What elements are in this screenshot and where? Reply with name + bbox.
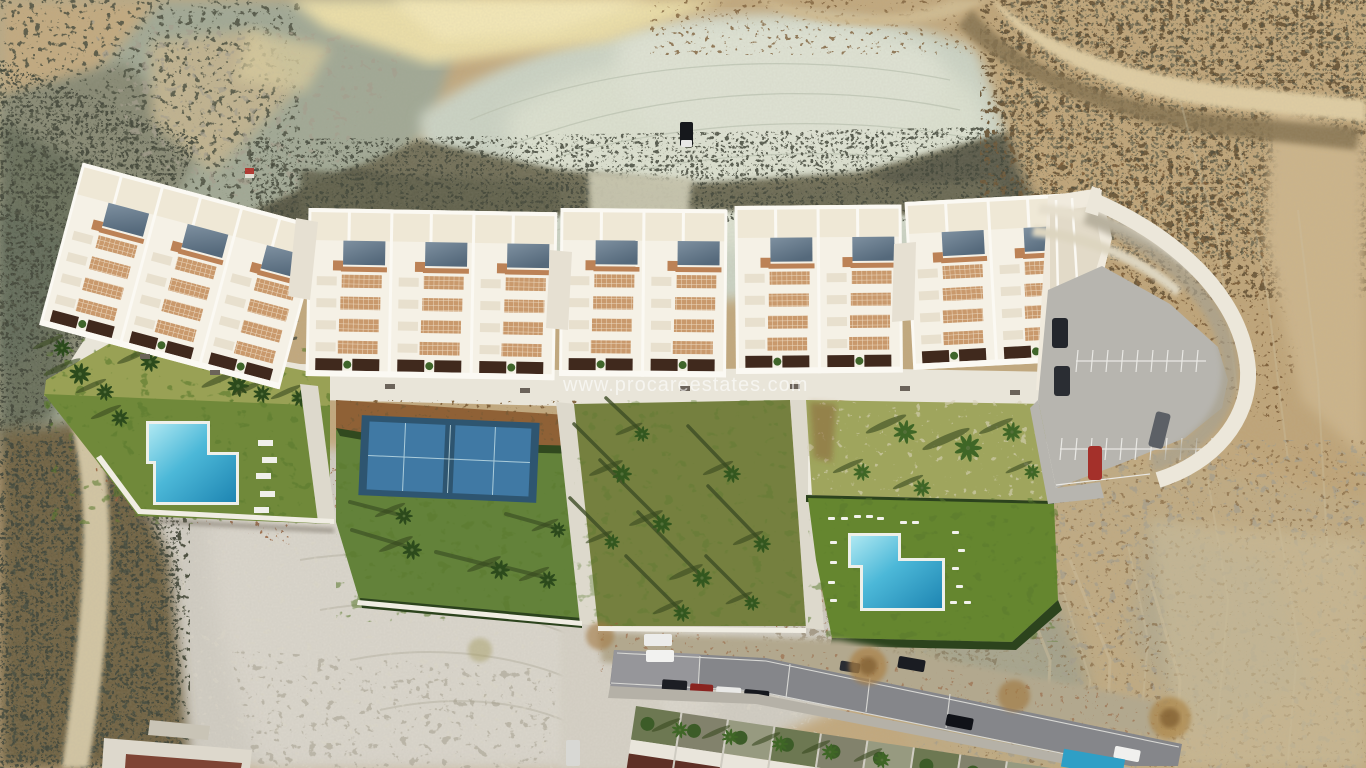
svg-text:www.procareestates.com: www.procareestates.com — [562, 374, 808, 396]
